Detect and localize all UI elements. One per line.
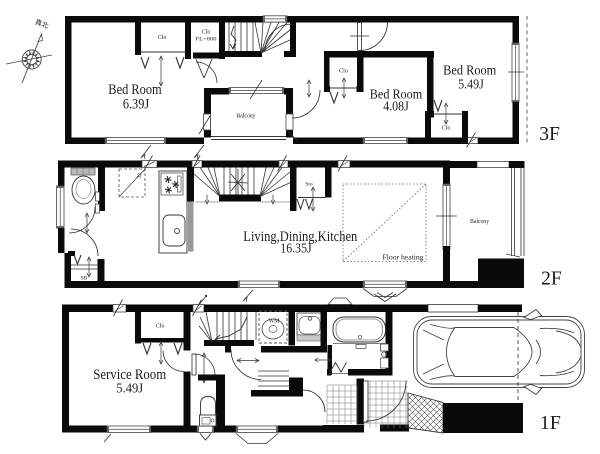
svg-text:Balcony: Balcony: [470, 218, 490, 225]
svg-text:6.39J: 6.39J: [123, 97, 150, 113]
svg-text:5.49J: 5.49J: [458, 77, 484, 92]
svg-text:Balcony: Balcony: [237, 113, 257, 120]
svg-text:Clo: Clo: [442, 126, 451, 132]
svg-text:SB: SB: [81, 276, 88, 282]
svg-text:4.08J: 4.08J: [383, 98, 409, 113]
svg-text:Floor heating: Floor heating: [383, 254, 425, 262]
svg-text:3F: 3F: [539, 124, 560, 145]
svg-text:16.35J: 16.35J: [280, 241, 311, 256]
svg-text:Bed Room: Bed Room: [443, 63, 497, 78]
svg-text:Sto: Sto: [305, 182, 313, 188]
svg-text:5.49J: 5.49J: [116, 380, 143, 395]
svg-text:Clo: Clo: [158, 35, 167, 41]
svg-text:WM: WM: [269, 319, 281, 325]
svg-text:Clo: Clo: [202, 30, 211, 36]
svg-text:1F: 1F: [540, 412, 561, 434]
svg-text:FL+800: FL+800: [196, 37, 217, 43]
svg-text:2F: 2F: [541, 269, 562, 290]
svg-text:Clo: Clo: [156, 324, 165, 330]
svg-text:Clo: Clo: [339, 69, 348, 75]
